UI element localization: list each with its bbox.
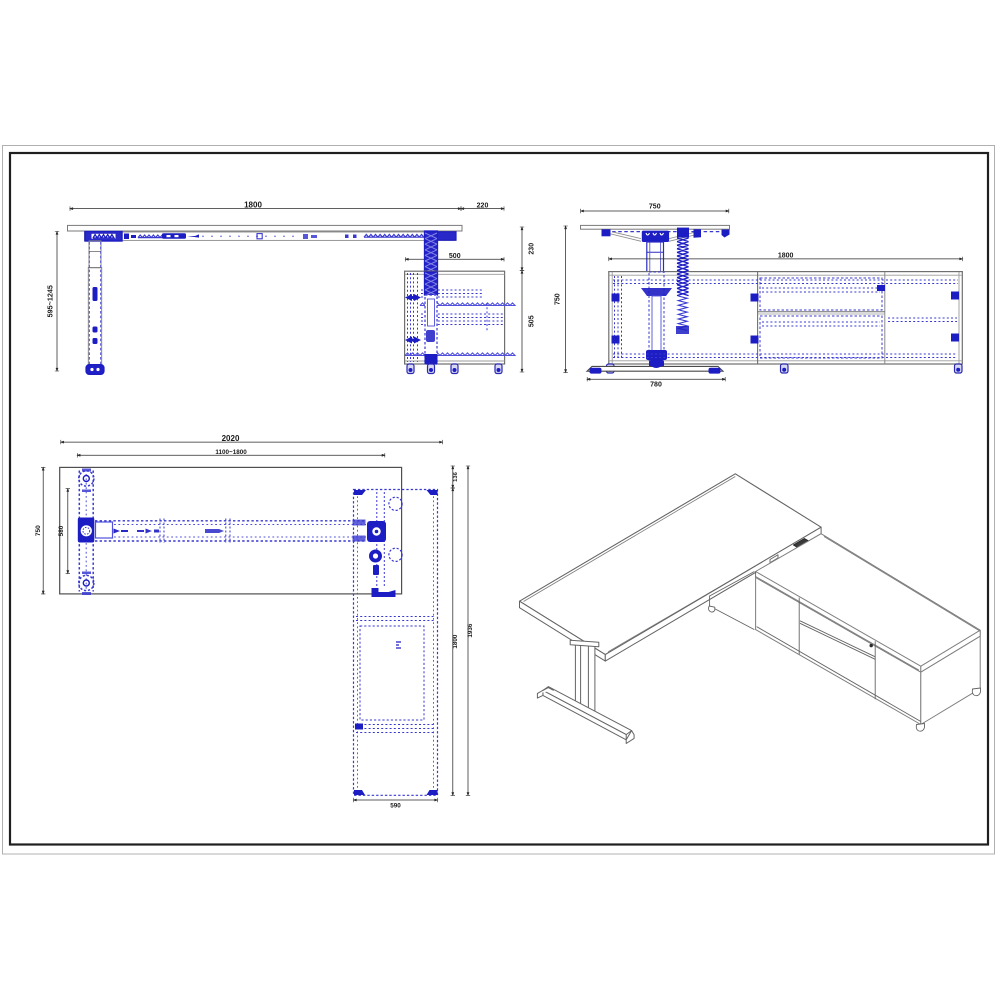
svg-text:1936: 1936 xyxy=(467,623,474,638)
svg-text:1800: 1800 xyxy=(244,200,262,209)
svg-text:780: 780 xyxy=(650,381,662,388)
svg-text:595~1245: 595~1245 xyxy=(46,285,55,317)
svg-text:1800: 1800 xyxy=(452,634,459,649)
svg-text:505: 505 xyxy=(529,315,536,327)
svg-text:590: 590 xyxy=(390,803,401,810)
svg-text:136: 136 xyxy=(453,471,459,481)
svg-text:750: 750 xyxy=(555,293,562,305)
svg-text:2020: 2020 xyxy=(222,434,240,443)
svg-text:230: 230 xyxy=(529,243,536,255)
svg-text:1100~1800: 1100~1800 xyxy=(215,449,247,456)
svg-text:220: 220 xyxy=(477,202,489,209)
svg-text:500: 500 xyxy=(449,253,461,260)
svg-text:750: 750 xyxy=(649,203,661,210)
svg-text:1800: 1800 xyxy=(778,253,794,260)
svg-text:750: 750 xyxy=(35,525,42,536)
svg-text:580: 580 xyxy=(58,525,65,536)
